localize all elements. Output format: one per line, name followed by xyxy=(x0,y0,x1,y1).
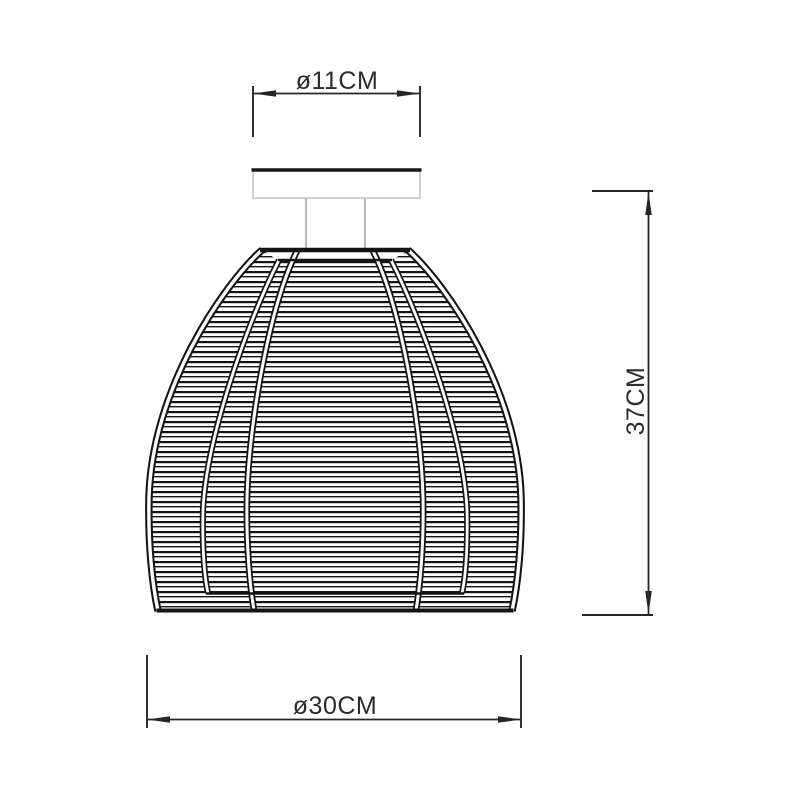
arrow-right-icon xyxy=(498,716,521,723)
canopy-body xyxy=(253,170,420,198)
lamp-shade xyxy=(140,249,532,615)
dimension-height: 37CM xyxy=(582,191,653,615)
ceiling-canopy xyxy=(252,170,422,198)
technical-drawing-canvas: ø11CM 37CM ø30CM xyxy=(0,0,800,800)
shade-horizontal-ribs xyxy=(140,250,532,615)
lamp-stem xyxy=(306,198,365,248)
lamp-dimension-drawing: ø11CM 37CM ø30CM xyxy=(0,0,800,800)
dimension-label-shade-diameter: ø30CM xyxy=(293,692,377,720)
arrow-down-icon xyxy=(645,591,652,614)
arrow-right-icon xyxy=(397,90,420,97)
dimension-shade-diameter: ø30CM xyxy=(147,655,521,728)
dimension-label-height: 37CM xyxy=(622,367,650,436)
dimension-label-canopy-diameter: ø11CM xyxy=(296,67,379,95)
arrow-up-icon xyxy=(645,192,652,215)
dimension-canopy-diameter: ø11CM xyxy=(253,67,420,137)
arrow-left-icon xyxy=(147,716,170,723)
arrow-left-icon xyxy=(253,90,276,97)
